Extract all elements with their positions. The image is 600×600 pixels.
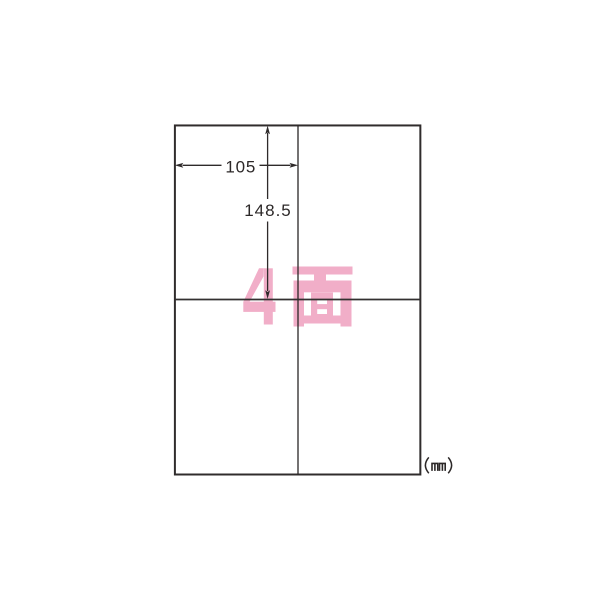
svg-text:105: 105 [225, 157, 256, 176]
svg-text:148.5: 148.5 [244, 201, 292, 220]
